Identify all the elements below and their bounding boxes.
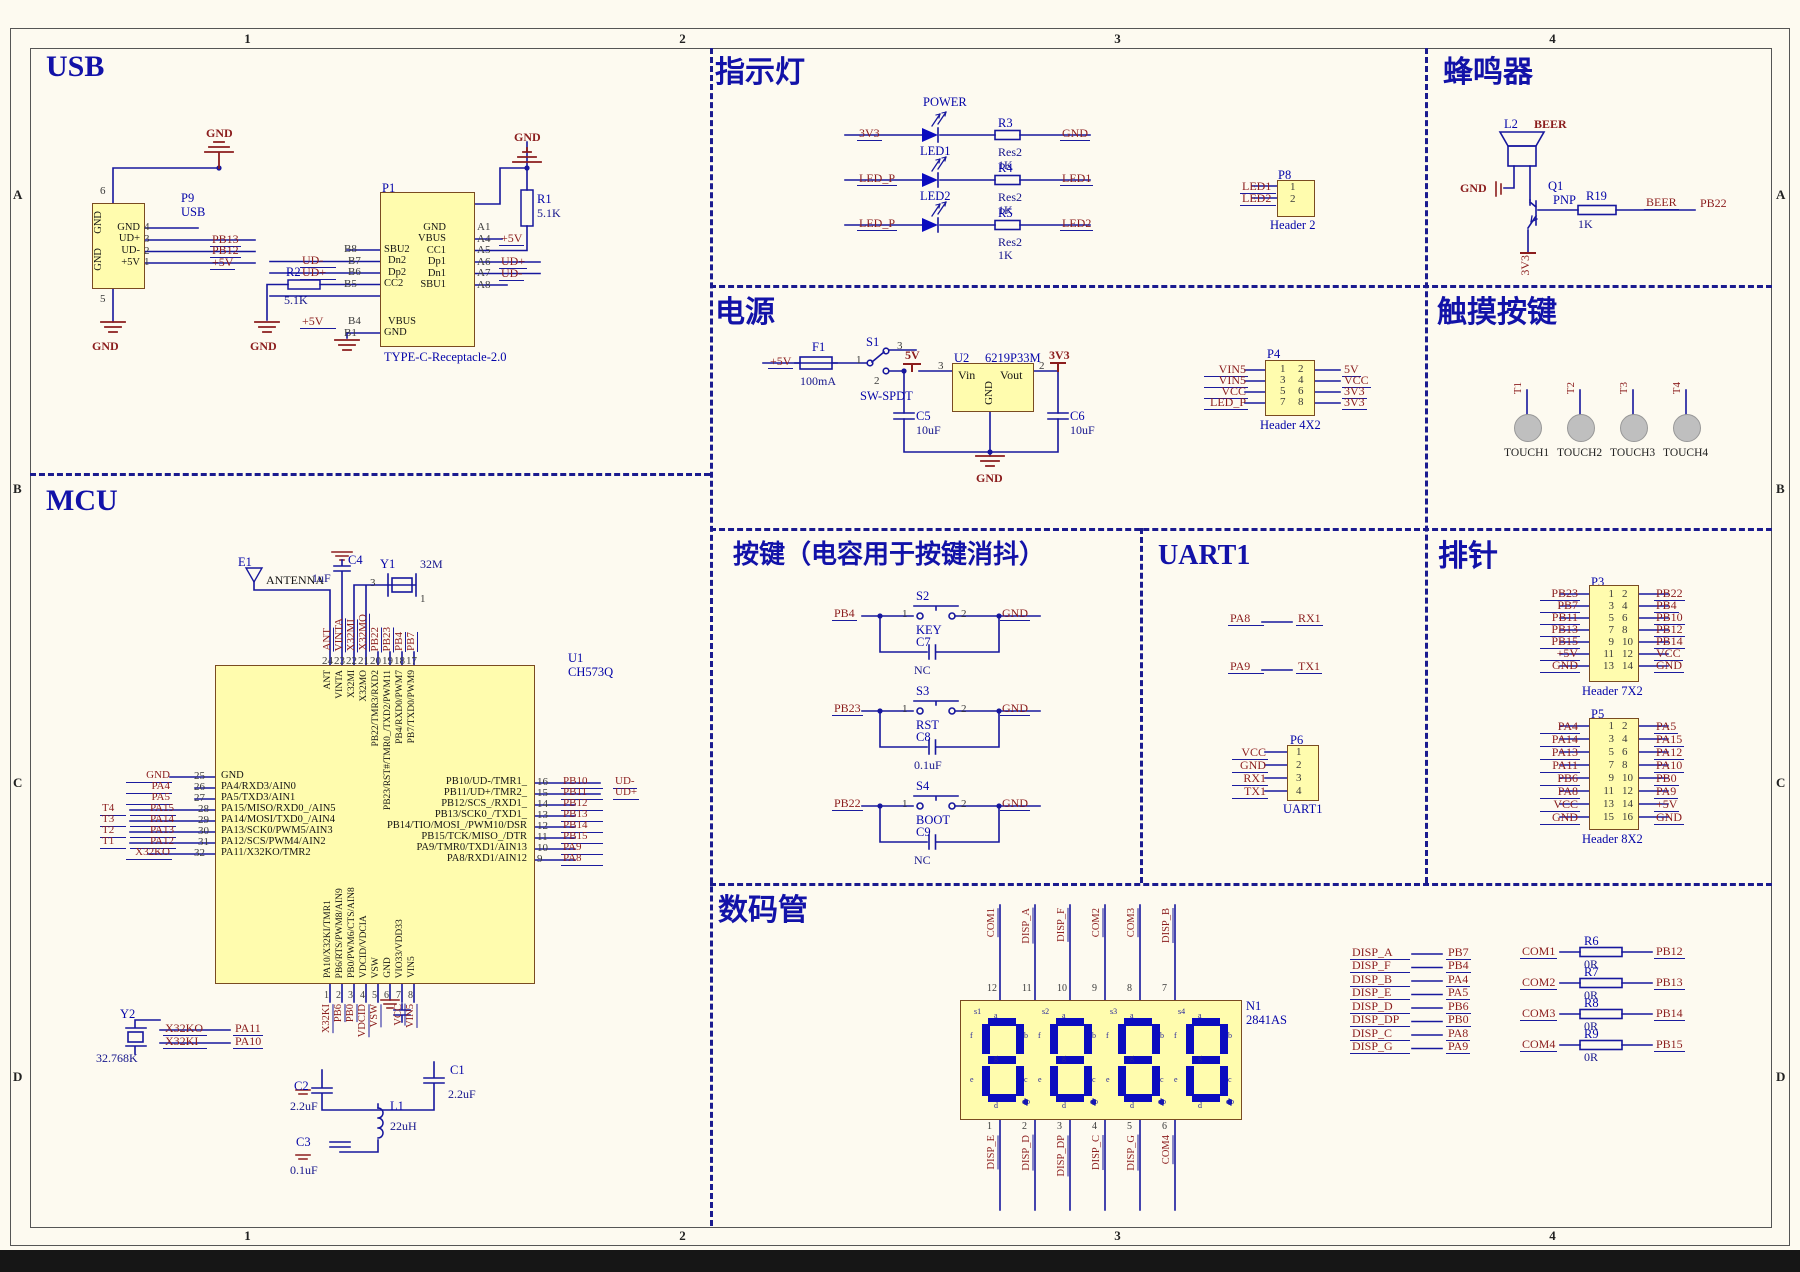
com-row: COM4 R9 0R PB15 — [1520, 1027, 1720, 1058]
y1-refdes: Y1 — [380, 558, 395, 571]
beer-net-top: BEER — [1534, 118, 1567, 130]
section-title-usb: USB — [46, 52, 104, 82]
p8-label: Header 2 — [1270, 219, 1315, 232]
p5-label: Header 8X2 — [1582, 833, 1643, 846]
p1-right-rows: GND A1 VBUS A4 +5V CC1 A5 Dp1 A6 UD+ — [408, 198, 527, 291]
seg-map-row: DISP_G PA9 — [1350, 1041, 1471, 1055]
mcu-bottom-pin-names: PA10/X32KI/TMR1PB6/RTS/PWM8/AIN9PB0/PWM6… — [324, 887, 420, 978]
c5-value: 10uF — [916, 424, 941, 436]
header-pin-row: LED2 2 — [1240, 193, 1296, 205]
p4-left-rows: VIN5 1 VIN5 3 VCC 5 LED_P 7 — [1204, 364, 1286, 408]
resistor-refdes: R6 — [1584, 935, 1599, 948]
mcu-left-pin-names: GNDPA4/RXD3/AIN0PA5/TXD3/AIN1PA15/MISO/R… — [221, 771, 336, 859]
r1-refdes: R1 — [537, 193, 552, 206]
c6-value: 10uF — [1070, 424, 1095, 436]
header-pin-row: LED_P 7 — [1204, 397, 1286, 408]
y2-value: 32.768K — [96, 1052, 138, 1064]
seven-seg-digit: s1 a b c d e — [966, 1006, 1034, 1112]
key-row: S3 PB23 1 2 GND RST C8 0.1uF — [830, 679, 1090, 774]
resistor-refdes: R7 — [1584, 966, 1599, 979]
p4-label: Header 4X2 — [1260, 419, 1321, 432]
connector-pin-row: +5V 1 +5V — [108, 257, 241, 269]
resistor-refdes: R4 — [998, 162, 1013, 175]
p9-pin-top: 6 — [100, 186, 106, 197]
display-top-nets: COM1 12 DISP_A 11 DISP_F 10 COM2 9 COM3 … — [993, 908, 1203, 998]
c4-refdes: C4 — [348, 554, 363, 567]
resistor-refdes: R5 — [998, 207, 1013, 220]
com-row: COM2 R7 0R PB13 — [1520, 965, 1720, 996]
section-title-uart: UART1 — [1158, 542, 1250, 570]
mcu-right-rows: 16 PB10 UD- 15 PB11 UD+ 14 PB12 13 PB13 — [537, 777, 639, 865]
header-pin-row: 8 3V3 — [1298, 397, 1371, 408]
c4-value: 1uF — [312, 572, 331, 584]
p1-left-rows: B8 SBU2 UD- B7 Dn2 UD+ B6 Dp2 B5 CC2 — [300, 244, 416, 339]
display-bottom-nets: 1 DISP_E 2 DISP_D 3 DISP_DP 4 DISP_C 5 D… — [993, 1122, 1203, 1212]
p9-pin-bottom: 5 — [100, 294, 106, 305]
f1-refdes: F1 — [812, 341, 825, 354]
p3-label: Header 7X2 — [1582, 685, 1643, 698]
r19-value: 1K — [1578, 218, 1593, 230]
q1-type: PNP — [1553, 194, 1576, 207]
connector-pin-row: +5V B4 VBUS — [300, 316, 416, 328]
p1-footprint: TYPE-C-Receptacle-2.0 — [384, 351, 507, 364]
e1-refdes: E1 — [238, 556, 252, 569]
seven-seg-digit: s2 a b c d e — [1034, 1006, 1102, 1112]
switch-refdes: S3 — [916, 685, 929, 698]
n1-part: 2841AS — [1246, 1014, 1287, 1027]
section-title-mcu: MCU — [46, 486, 118, 516]
gnd-label: GND — [206, 127, 233, 139]
seg-map-row: DISP_E PA5 — [1350, 987, 1471, 1001]
mcu-pin-row: 9 PA8 — [537, 854, 639, 865]
section-title-keys: 按键（电容用于按键消抖） — [733, 542, 1045, 568]
uart-net-rows: PA8 RX1 PA9 TX1 — [1228, 612, 1323, 708]
display-digits: s1 a b c d e — [966, 1006, 1238, 1112]
3v3-rail: 3V3 — [1519, 255, 1531, 276]
led-top-label: POWER — [923, 96, 967, 109]
led-row: LED_P LED2 R4 Res2 1K LED1 — [845, 149, 1105, 194]
section-title-touch: 触摸按键 — [1437, 298, 1557, 328]
switch-refdes: S2 — [916, 590, 929, 603]
seven-seg-digit: s3 a b c d e — [1102, 1006, 1170, 1112]
touch-pad-circle[interactable] — [1567, 414, 1595, 442]
gnd-label: GND — [976, 472, 1003, 484]
header-pin-row: GND 13 14 GND — [1540, 660, 1696, 672]
f1-value: 100mA — [800, 375, 836, 387]
c1-value: 2.2uF — [448, 1088, 476, 1100]
s1-refdes: S1 — [866, 336, 879, 349]
schematic-sheet: 1234 1234 ABCD ABCD — [0, 0, 1800, 1272]
mcu-top-nets: ANT 24 VINTA 23 X32MI 22 X32MO 21 PB22 2… — [324, 594, 420, 652]
y2-net-rows: X32KO PA11 X32KI PA10 — [163, 1022, 263, 1048]
resistor-refdes: R9 — [1584, 1028, 1599, 1041]
mcu-pin-row: X32KO 32 — [100, 848, 214, 859]
mcu-bottom-nets: X32KI PB6 PB0 VDCID VSW VCC — [322, 1004, 418, 1056]
gnd-label: GND — [250, 340, 277, 352]
l2-refdes: L2 — [1504, 118, 1518, 131]
c3-value: 0.1uF — [290, 1164, 318, 1176]
cap-refdes: C7 — [916, 636, 931, 649]
seg-map-row: DISP_F PB4 — [1350, 960, 1471, 974]
p4-refdes: P4 — [1267, 348, 1280, 361]
connector-pin-row: UD+ B6 Dp2 — [300, 267, 416, 279]
p6-label: UART1 — [1283, 803, 1323, 816]
seven-seg-digit: s4 a b c d e — [1170, 1006, 1238, 1112]
section-title-indicator: 指示灯 — [715, 58, 805, 88]
r1-value: 5.1K — [537, 207, 561, 219]
key-row: S2 PB4 1 2 GND KEY C7 NC — [830, 584, 1090, 679]
header-pin-row: RX1 3 — [1232, 772, 1302, 785]
c5-refdes: C5 — [916, 410, 931, 423]
section-title-power: 电源 — [715, 298, 775, 328]
gnd-label: GND — [514, 131, 541, 143]
l1-refdes: L1 — [390, 1100, 404, 1113]
connector-pin-row: VBUS A4 +5V — [408, 234, 527, 246]
p9-side-name: GND — [94, 248, 105, 271]
c2-value: 2.2uF — [290, 1100, 318, 1112]
r2-value: 5.1K — [284, 294, 308, 306]
touch-pad[interactable]: T2 TOUCH2 — [1553, 380, 1606, 470]
mcu-left-rows: GND 25 PA4 26 PA5 27 T4 PA15 28 T3 — [100, 771, 214, 859]
p4-right-rows: 2 5V 4 VCC 6 3V3 8 3V3 — [1298, 364, 1371, 408]
com-row: COM3 R8 0R PB14 — [1520, 996, 1720, 1027]
connector-pin-row: SBU1 A8 — [408, 280, 527, 292]
n1-refdes: N1 — [1246, 1000, 1261, 1013]
section-title-headers: 排针 — [1438, 542, 1498, 572]
p6-rows: VCC 1 GND 2 RX1 3 TX1 4 — [1232, 746, 1302, 798]
touch-pad[interactable]: T1 TOUCH1 — [1500, 380, 1553, 470]
s1-type: SW-SPDT — [860, 390, 913, 403]
cap-refdes: C8 — [916, 731, 931, 744]
p8-rows: LED1 1 LED2 2 — [1240, 181, 1296, 205]
connector-pin-row: Dn1 A7 UD- — [408, 268, 527, 280]
pb22-port: PB22 — [1700, 197, 1727, 209]
c3-refdes: C3 — [296, 1136, 311, 1149]
c1-refdes: C1 — [450, 1064, 465, 1077]
header-pin-row: GND 15 16 GND — [1540, 811, 1696, 824]
section-title-buzzer: 蜂鸣器 — [1443, 58, 1533, 88]
led-row: LED_P R5 Res2 1K LED2 — [845, 194, 1105, 239]
resistor-refdes: R8 — [1584, 997, 1599, 1010]
mcu-right-pin-names: PB10/UD-/TMR1_PB11/UD+/TMR2_PB12/SCS_/RX… — [387, 777, 527, 865]
y1-value: 32M — [420, 558, 443, 570]
q1-refdes: Q1 — [1548, 180, 1563, 193]
3v3-rail: 3V3 — [1049, 349, 1070, 361]
header-pin-row: TX1 4 — [1232, 785, 1302, 798]
led-row: POWER 3V3 LED1 R3 Res2 1K GND — [845, 104, 1105, 149]
led-rows: POWER 3V3 LED1 R3 Res2 1K GND LED_P LED2… — [845, 104, 1105, 239]
touch-pad[interactable]: T4 TOUCH4 — [1659, 380, 1712, 470]
key-rows: S2 PB4 1 2 GND KEY C7 NC S3 PB23 1 2 GND… — [830, 584, 1090, 869]
touch-pad[interactable]: T3 TOUCH3 — [1606, 380, 1659, 470]
touch-pad-circle[interactable] — [1514, 414, 1542, 442]
display-seg-map: DISP_A PB7 DISP_F PB4 DISP_B PA4 DISP_E … — [1350, 946, 1471, 1054]
5v-rail: 5V — [905, 349, 920, 361]
mcu-bottom-nums: 12345678 — [324, 985, 420, 1003]
u1-part: CH573Q — [568, 666, 613, 679]
section-title-display: 数码管 — [718, 896, 808, 926]
p5-rows: PA4 1 2 PA5 PA14 3 4 PA15 PA13 5 6 PA12 … — [1540, 720, 1696, 824]
p3-rows: PB23 1 2 PB22 PB7 3 4 PB4 PB11 5 6 PB10 … — [1540, 588, 1696, 672]
r2-refdes: R2 — [286, 266, 301, 279]
p9-name: USB — [181, 206, 205, 219]
key-row: S4 PB22 1 2 GND BOOT C9 NC — [830, 774, 1090, 869]
r19-refdes: R19 — [1586, 190, 1607, 203]
resistor-refdes: R3 — [998, 117, 1013, 130]
p9-refdes: P9 — [181, 192, 194, 205]
touch-pads: T1 TOUCH1 T2 TOUCH2 T3 TOUCH3 T4 TOUCH4 — [1500, 380, 1712, 470]
y2-refdes: Y2 — [120, 1008, 135, 1021]
plus5v-net: +5V — [768, 355, 793, 369]
l1-value: 22uH — [390, 1120, 417, 1132]
c6-refdes: C6 — [1070, 410, 1085, 423]
connector-pin-row: B1 GND — [300, 328, 416, 340]
gnd-label: GND — [1460, 182, 1487, 194]
switch-refdes: S4 — [916, 780, 929, 793]
cap-refdes: C9 — [916, 826, 931, 839]
com-row: COM1 R6 0R PB12 — [1520, 934, 1720, 965]
seg-map-row: DISP_DP PB0 — [1350, 1014, 1471, 1028]
display-com-rows: COM1 R6 0R PB12 COM2 R7 0R PB13 COM3 R8 … — [1520, 934, 1720, 1058]
gnd-label: GND — [92, 340, 119, 352]
p9-side-name: GND — [94, 211, 105, 234]
c2-refdes: C2 — [294, 1080, 309, 1093]
touch-pad-circle[interactable] — [1620, 414, 1648, 442]
p9-rows: GND 4 UD+ 3 PB13 UD- 2 PB12 +5V 1 +5V — [108, 222, 241, 269]
beer-net: BEER — [1644, 196, 1679, 210]
connector-pin-row: B5 CC2 — [300, 279, 416, 291]
u1-refdes: U1 — [568, 652, 583, 665]
touch-pad-circle[interactable] — [1673, 414, 1701, 442]
